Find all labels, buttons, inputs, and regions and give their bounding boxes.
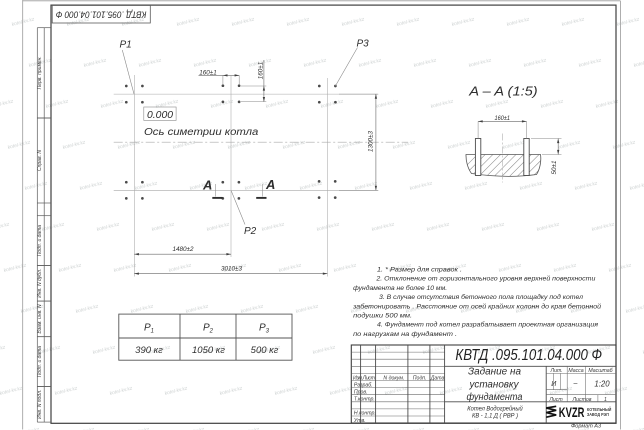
svg-text:P1: P1 [120,40,132,51]
svg-text:Лит.: Лит. [550,368,563,374]
svg-text:A: A [265,177,275,192]
svg-text:160±1: 160±1 [199,69,217,76]
svg-text:1300±3: 1300±3 [367,131,374,152]
svg-text:Лист: Лист [548,397,563,403]
svg-text:Формат А3: Формат А3 [571,423,602,429]
svg-text:1050 кг: 1050 кг [192,345,225,356]
svg-text:Котел Водогрейный: Котел Водогрейный [467,406,523,413]
svg-text:по нагрузкам на фундамент .: по нагрузкам на фундамент . [353,330,457,338]
svg-text:фундамента: фундамента [467,391,523,403]
svg-text:1: 1 [604,397,607,403]
svg-text:забетонировать . Расстояние от: забетонировать . Расстояние от осей край… [352,302,601,310]
svg-text:Т.контр.: Т.контр. [354,397,375,403]
svg-text:фундамента не более 10 мм.: фундамента не более 10 мм. [353,284,447,292]
svg-text:Пров.: Пров. [354,389,368,395]
svg-text:A – A (1:5): A – A (1:5) [468,84,538,99]
svg-text:1480±2: 1480±2 [173,246,194,253]
svg-text:A: A [202,177,212,192]
svg-text:50±1: 50±1 [551,161,558,175]
svg-text:Дата: Дата [430,375,445,381]
svg-text:160±1: 160±1 [495,115,511,122]
svg-text:Задание на: Задание на [468,367,521,378]
svg-text:КВТД .095.101.04.000 Ф: КВТД .095.101.04.000 Ф [56,8,147,19]
svg-text:Масштаб: Масштаб [588,368,613,374]
svg-text:160±1: 160±1 [257,62,264,79]
svg-text:ЗАВОД РЭП: ЗАВОД РЭП [587,412,609,417]
svg-text:Масса: Масса [568,368,583,374]
svg-text:Подп. и дата: Подп. и дата [37,346,43,378]
svg-text:Утв.: Утв. [354,418,366,424]
svg-text:Разраб.: Разраб. [354,382,373,388]
svg-text:500 кг: 500 кг [251,345,279,356]
svg-text:3. В случае отсутствия бетонно: 3. В случае отсутствия бетонного пола пл… [379,293,583,301]
svg-text:N докум.: N докум. [383,375,404,381]
svg-text:2. Отклонение от горизонтально: 2. Отклонение от горизонтального уровня … [375,275,595,283]
svg-text:P3: P3 [357,39,370,50]
svg-text:Подп. и дата: Подп. и дата [37,225,43,257]
svg-text:1. * Размер для справок .: 1. * Размер для справок . [377,266,462,274]
svg-text:Листов: Листов [572,397,592,403]
svg-text:установку: установку [469,380,520,391]
svg-text:390 кг: 390 кг [135,345,163,356]
svg-text:Н.контр.: Н.контр. [354,411,376,417]
svg-text:Инв. N дубл.: Инв. N дубл. [37,269,43,298]
svg-text:Взам. инв. N: Взам. инв. N [37,304,43,334]
svg-text:КВТД .095.101.04.000 Ф: КВТД .095.101.04.000 Ф [455,347,602,364]
svg-text:Справ. N: Справ. N [37,150,43,171]
svg-text:Изм.Лист: Изм.Лист [353,375,376,381]
svg-text:KVZR: KVZR [559,404,585,420]
svg-text:1:20: 1:20 [594,380,610,389]
svg-text:4. Фундамент под котел разраба: 4. Фундамент под котел разрабатывает про… [377,321,598,329]
svg-text:3010±3: 3010±3 [221,265,242,272]
svg-text:Перв. примен.: Перв. примен. [37,56,43,89]
svg-text:Ось симетрии котла: Ось симетрии котла [144,127,259,138]
svg-text:КВ - 1,1 Д ( РВР ): КВ - 1,1 Д ( РВР ) [472,413,518,419]
svg-text:0.000: 0.000 [147,110,173,121]
svg-text:Подп.: Подп. [413,375,427,381]
svg-text:Инв. N подл.: Инв. N подл. [37,390,43,419]
svg-text:–: – [573,380,578,387]
svg-text:подушки 500 мм.: подушки 500 мм. [353,312,412,320]
svg-text:P2: P2 [244,226,257,237]
